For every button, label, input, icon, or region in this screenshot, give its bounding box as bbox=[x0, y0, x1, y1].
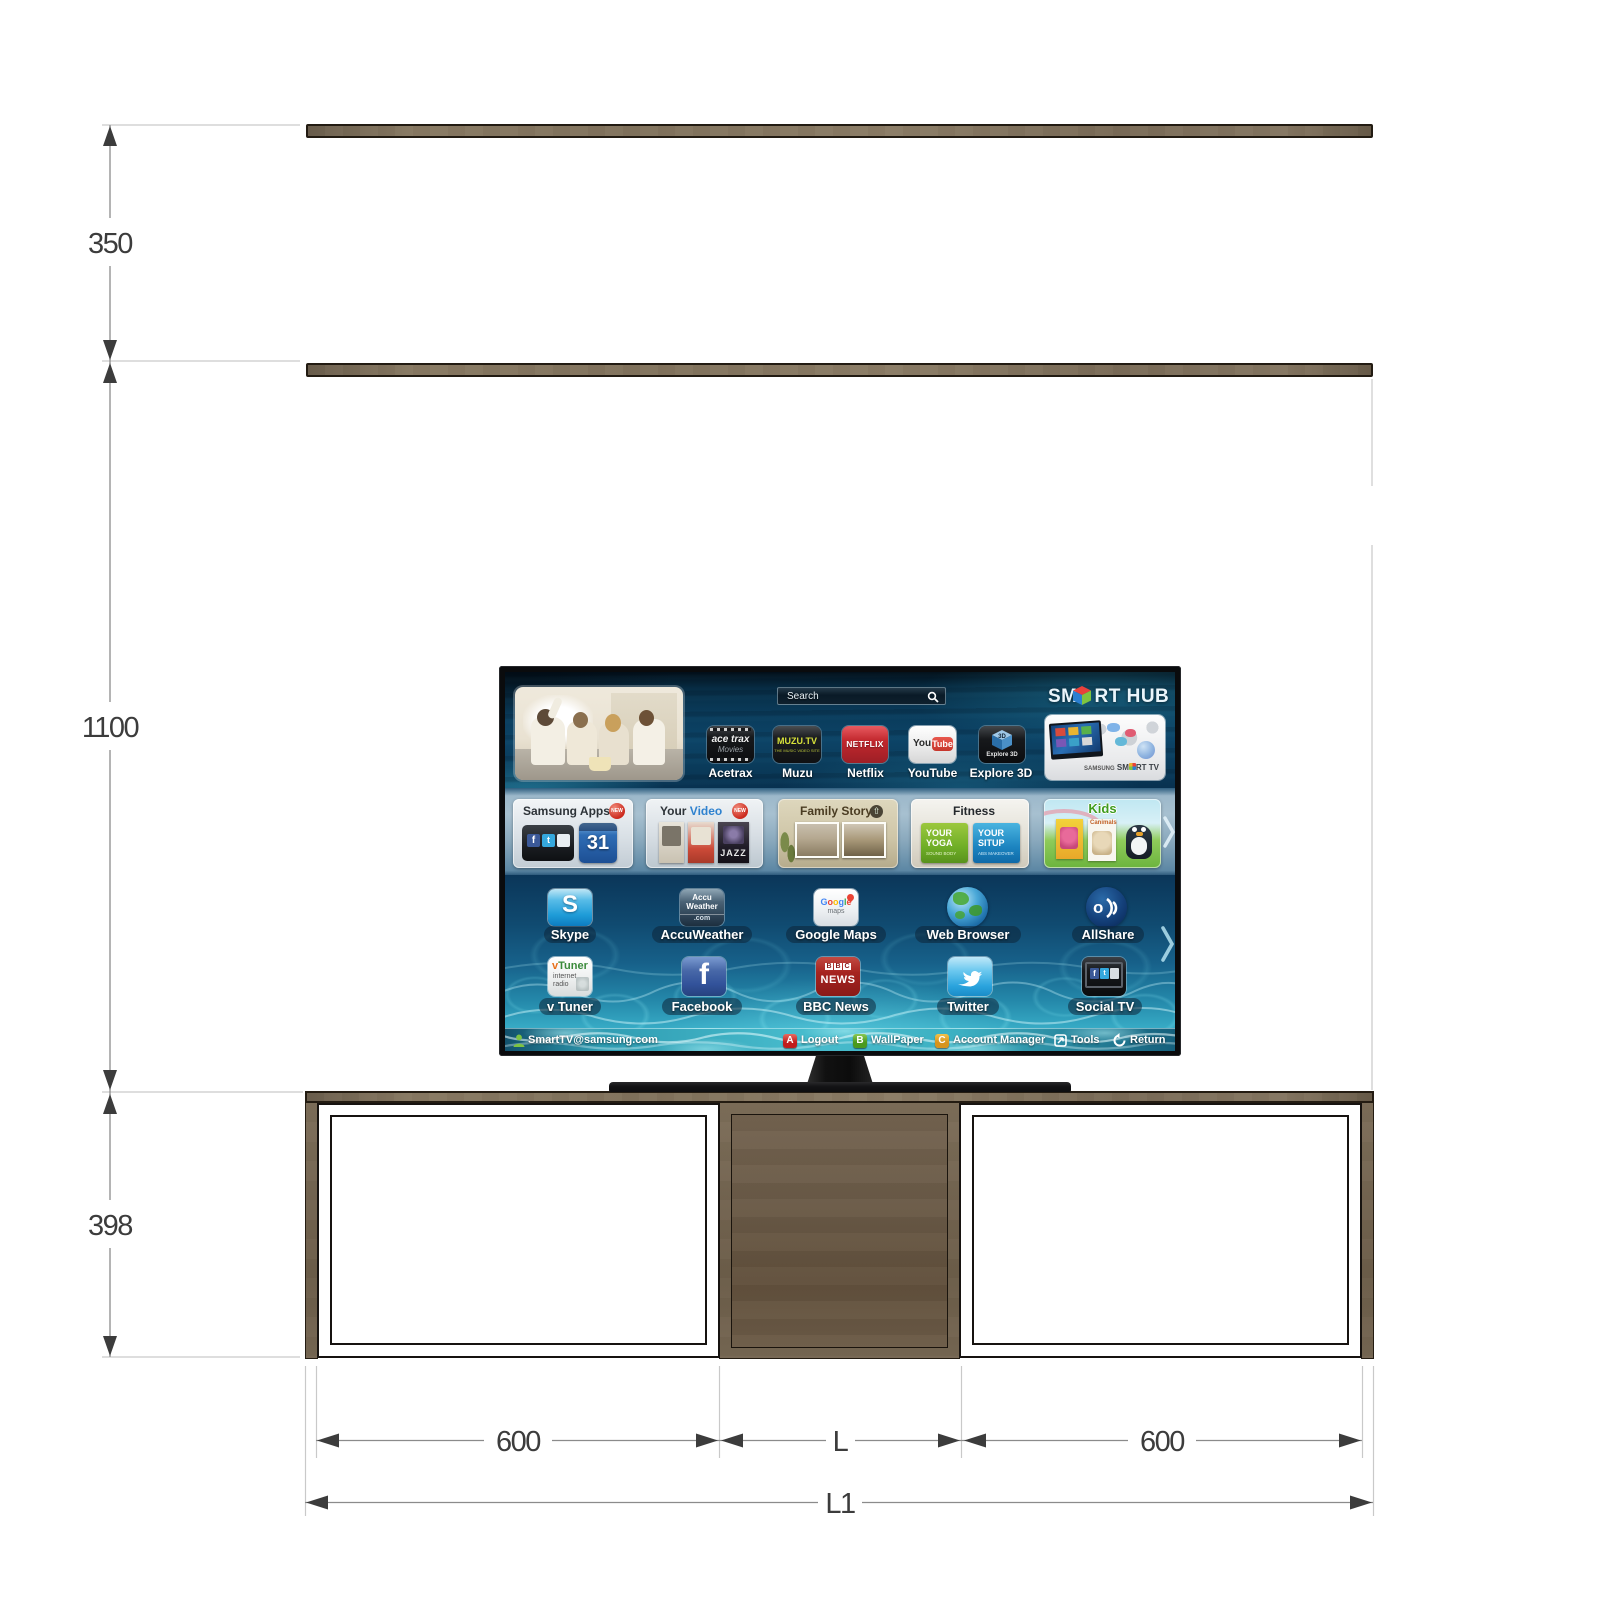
svg-text:600: 600 bbox=[1140, 1426, 1184, 1458]
svg-text:3D: 3D bbox=[998, 734, 1006, 740]
svg-text:1100: 1100 bbox=[82, 712, 139, 744]
svg-text:L: L bbox=[833, 1426, 849, 1458]
svg-text:L1: L1 bbox=[825, 1488, 855, 1520]
svg-text:600: 600 bbox=[496, 1426, 540, 1458]
svg-text:350: 350 bbox=[88, 228, 132, 260]
svg-text:398: 398 bbox=[88, 1210, 132, 1242]
